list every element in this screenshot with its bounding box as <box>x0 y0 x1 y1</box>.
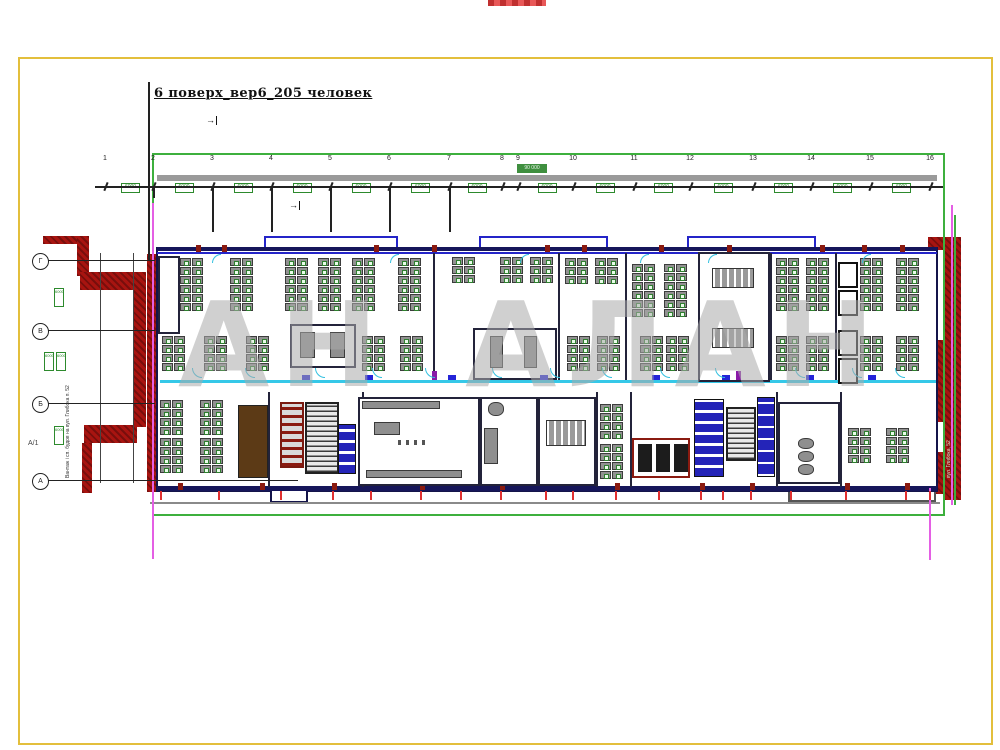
desk <box>896 336 907 344</box>
desk <box>776 285 787 293</box>
phone-booth-3 <box>838 330 858 356</box>
lounge-barrel-1 <box>798 438 814 449</box>
desk <box>600 404 611 412</box>
desk <box>242 276 253 284</box>
desk <box>160 409 171 417</box>
desk <box>664 291 675 299</box>
row-line-4 <box>48 480 298 481</box>
desk-pod <box>200 438 224 473</box>
dimension-box-vertical: 6000 <box>56 352 66 371</box>
desk <box>896 285 907 293</box>
wall-v-11 <box>840 392 842 487</box>
desk <box>612 431 623 439</box>
desk <box>788 285 799 293</box>
desk <box>788 294 799 302</box>
desk <box>400 345 411 353</box>
desk-pod <box>204 336 228 371</box>
red-tick <box>545 491 547 500</box>
desk <box>464 275 475 283</box>
desk-pod <box>567 336 591 371</box>
desk <box>848 446 859 454</box>
blue-door <box>540 375 548 380</box>
dimension-box: 6000 <box>352 183 371 193</box>
desk <box>160 447 171 455</box>
door-jamb <box>727 245 732 252</box>
desk <box>530 275 541 283</box>
desk <box>172 447 183 455</box>
desk <box>860 276 871 284</box>
desk <box>180 276 191 284</box>
desk <box>364 267 375 275</box>
desk <box>644 273 655 281</box>
desk <box>230 258 241 266</box>
desk <box>896 276 907 284</box>
desk <box>644 291 655 299</box>
cabinet-left <box>158 256 180 334</box>
desk <box>896 303 907 311</box>
blue-door <box>302 375 310 380</box>
desk <box>318 294 329 302</box>
desk-pod <box>806 336 830 371</box>
desk <box>246 354 257 362</box>
desk <box>200 456 211 464</box>
desk <box>172 409 183 417</box>
desk <box>600 471 611 479</box>
desk <box>664 300 675 308</box>
desk <box>806 294 817 302</box>
desk <box>664 273 675 281</box>
grid-drop-line <box>449 186 451 232</box>
desk <box>886 455 897 463</box>
desk <box>640 336 651 344</box>
desk <box>242 258 253 266</box>
row-line-1 <box>48 260 155 261</box>
red-tick <box>572 491 574 500</box>
top-red-strip <box>488 0 546 6</box>
desk <box>230 294 241 302</box>
wc-stall-b <box>656 444 670 472</box>
red-wall-step-b <box>77 236 89 276</box>
grid-number: 10 <box>569 155 577 162</box>
door-jamb <box>905 483 910 490</box>
desk <box>230 303 241 311</box>
desk <box>542 275 553 283</box>
desk <box>230 267 241 275</box>
grid-number: 14 <box>807 155 815 162</box>
desk <box>776 336 787 344</box>
desk <box>162 336 173 344</box>
desk-pod <box>398 258 422 311</box>
north-arrow: → <box>289 201 300 210</box>
axis-bubble: Г <box>32 253 49 270</box>
axis-bubble: А <box>32 473 49 490</box>
desk <box>612 422 623 430</box>
desk <box>412 363 423 371</box>
desk <box>172 465 183 473</box>
desk <box>180 267 191 275</box>
kitchen-counter <box>362 401 440 409</box>
desk <box>607 267 618 275</box>
desk <box>160 418 171 426</box>
desk <box>806 258 817 266</box>
desk-pod <box>362 336 386 371</box>
desk <box>652 345 663 353</box>
magenta-left <box>152 203 154 559</box>
blue-door <box>365 375 373 380</box>
desk <box>330 258 341 266</box>
room-center <box>473 328 557 380</box>
door-jamb <box>900 245 905 252</box>
desk <box>318 276 329 284</box>
desk <box>597 336 608 344</box>
door-jamb <box>700 483 705 490</box>
desk <box>579 363 590 371</box>
red-wall-step-c <box>80 272 138 290</box>
desk <box>398 303 409 311</box>
desk <box>192 285 203 293</box>
desk <box>788 267 799 275</box>
desk <box>297 294 308 302</box>
door-jamb <box>222 245 227 252</box>
wall-v-6 <box>268 392 270 487</box>
desk <box>886 428 897 436</box>
desk <box>806 354 817 362</box>
wc-stalls-2 <box>694 399 724 477</box>
desk <box>200 447 211 455</box>
dim-line <box>95 186 943 188</box>
desk <box>258 354 269 362</box>
rc-table-1 <box>490 336 503 368</box>
right-street-note: вул. Глибока, 52 <box>947 440 952 478</box>
desk <box>666 354 677 362</box>
desk <box>512 266 523 274</box>
desk <box>352 285 363 293</box>
door-jamb <box>582 245 587 252</box>
desk <box>664 264 675 272</box>
dimension-box: 6000 <box>654 183 673 193</box>
grid-number: 4 <box>269 155 273 162</box>
desk <box>160 427 171 435</box>
red-tick <box>370 491 372 500</box>
desk <box>567 336 578 344</box>
desk <box>230 276 241 284</box>
desk <box>666 336 677 344</box>
desk <box>896 354 907 362</box>
desk <box>216 345 227 353</box>
desk <box>412 336 423 344</box>
desk <box>192 258 203 266</box>
desk <box>452 275 463 283</box>
bump-bottom-left <box>270 489 308 503</box>
dimension-box: 6000 <box>596 183 615 193</box>
desk <box>577 258 588 266</box>
kitchen-chairs <box>398 440 430 445</box>
desk <box>352 267 363 275</box>
desk <box>364 294 375 302</box>
desk <box>600 422 611 430</box>
desk-pod <box>886 428 910 463</box>
desk-pod <box>600 404 624 439</box>
desk <box>330 285 341 293</box>
axis-extra-label: А/1 <box>28 440 39 447</box>
wc-stalls-1 <box>338 424 356 474</box>
desk <box>364 303 375 311</box>
desk <box>374 336 385 344</box>
desk <box>644 264 655 272</box>
desk <box>896 345 907 353</box>
rc-table-2 <box>524 336 537 368</box>
desk <box>258 336 269 344</box>
gray-bar <box>157 175 937 181</box>
kitchen-bench <box>366 470 462 478</box>
desk <box>362 354 373 362</box>
desk <box>579 336 590 344</box>
desk <box>898 437 909 445</box>
desk-pod <box>666 336 690 371</box>
desk <box>362 345 373 353</box>
desk-pod <box>776 336 800 371</box>
desk <box>318 267 329 275</box>
elevator-grid <box>280 402 304 468</box>
desk <box>400 363 411 371</box>
desk <box>666 345 677 353</box>
door-jamb <box>432 245 437 252</box>
red-tick <box>615 491 617 500</box>
desk <box>412 354 423 362</box>
desk <box>818 276 829 284</box>
desk <box>200 400 211 408</box>
axis-bubble: Б <box>32 396 49 413</box>
desk <box>212 438 223 446</box>
desk <box>410 267 421 275</box>
door-jamb <box>862 245 867 252</box>
desk <box>860 285 871 293</box>
desk <box>285 294 296 302</box>
desk <box>788 354 799 362</box>
desk <box>565 276 576 284</box>
desk <box>898 428 909 436</box>
desk <box>452 257 463 265</box>
desk <box>788 336 799 344</box>
desk-pod <box>896 336 920 371</box>
grid-number: 1 <box>103 155 107 162</box>
wall-v-3 <box>625 253 627 380</box>
desk <box>162 363 173 371</box>
desk <box>632 264 643 272</box>
conference-table <box>546 420 586 446</box>
desk <box>806 345 817 353</box>
desk <box>400 354 411 362</box>
desk <box>172 418 183 426</box>
desk <box>172 400 183 408</box>
red-tick <box>845 491 847 500</box>
desk <box>192 303 203 311</box>
desk <box>788 303 799 311</box>
desk-pod <box>640 336 664 371</box>
desk <box>200 465 211 473</box>
desk-pod <box>600 444 624 479</box>
desk <box>285 267 296 275</box>
total-dimension-box: 90 000 <box>517 164 547 173</box>
desk-pod <box>848 428 872 463</box>
red-tick <box>905 491 907 500</box>
desk <box>776 303 787 311</box>
desk <box>174 354 185 362</box>
door-jamb <box>750 483 755 490</box>
purple-door <box>736 371 741 380</box>
grid-number: 7 <box>447 155 451 162</box>
desk <box>285 303 296 311</box>
desk <box>297 303 308 311</box>
desk <box>848 455 859 463</box>
desk <box>204 363 215 371</box>
desk <box>364 285 375 293</box>
desk <box>398 294 409 302</box>
desk <box>908 336 919 344</box>
desk <box>204 354 215 362</box>
desk <box>200 409 211 417</box>
desk <box>180 258 191 266</box>
phone-booth-2 <box>838 290 858 316</box>
desk <box>410 303 421 311</box>
door-jamb <box>845 483 850 490</box>
wall-v-1 <box>433 253 435 380</box>
desk <box>860 267 871 275</box>
red-tick <box>700 491 702 500</box>
desk <box>896 294 907 302</box>
desk <box>818 267 829 275</box>
desk <box>530 266 541 274</box>
top-blue-line <box>157 252 937 254</box>
door-jamb <box>374 245 379 252</box>
desk <box>818 354 829 362</box>
desk <box>806 336 817 344</box>
desk <box>806 285 817 293</box>
desk <box>678 363 689 371</box>
desk <box>860 428 871 436</box>
desk <box>818 258 829 266</box>
desk <box>788 345 799 353</box>
desk <box>174 363 185 371</box>
desk <box>607 258 618 266</box>
desk <box>872 267 883 275</box>
dimension-box: 6000 <box>714 183 733 193</box>
desk <box>612 444 623 452</box>
desk <box>204 345 215 353</box>
red-tick <box>218 491 220 500</box>
red-tick <box>460 491 462 500</box>
desk <box>174 345 185 353</box>
desk <box>818 303 829 311</box>
desk <box>860 345 871 353</box>
desk <box>216 336 227 344</box>
desk <box>258 345 269 353</box>
desk <box>896 267 907 275</box>
desk <box>212 418 223 426</box>
left-street-note: Вантаж і сп. будов на вул. Глибока п. 52 <box>66 385 71 478</box>
desk <box>664 309 675 317</box>
desk <box>908 294 919 302</box>
desk-pod <box>595 258 619 284</box>
desk <box>212 447 223 455</box>
desk <box>678 336 689 344</box>
blue-door <box>868 375 876 380</box>
wall-v-8 <box>596 392 598 487</box>
desk-pod <box>452 257 476 283</box>
desk <box>818 336 829 344</box>
desk <box>318 258 329 266</box>
desk <box>160 456 171 464</box>
desk <box>410 258 421 266</box>
desk <box>500 275 511 283</box>
desk <box>410 276 421 284</box>
desk <box>776 276 787 284</box>
grid-drop-line <box>330 186 332 232</box>
desk <box>860 294 871 302</box>
desk <box>676 273 687 281</box>
desk <box>542 257 553 265</box>
desk <box>678 354 689 362</box>
left-dim-v1 <box>100 253 101 483</box>
door-jamb <box>260 483 265 490</box>
desk-pod <box>860 336 884 371</box>
desk <box>297 285 308 293</box>
desk <box>398 285 409 293</box>
desk <box>908 303 919 311</box>
desk <box>640 345 651 353</box>
door-jamb <box>659 245 664 252</box>
dimension-box: 6000 <box>774 183 793 193</box>
lounge-chair <box>488 402 504 416</box>
red-tick <box>658 491 660 500</box>
phone-booth-1 <box>838 262 858 288</box>
desk-pod <box>860 258 884 311</box>
drawing-title: 6 поверх_вер6_205 человек <box>154 86 372 101</box>
desk <box>806 303 817 311</box>
desk <box>908 363 919 371</box>
desk <box>652 336 663 344</box>
desk <box>908 354 919 362</box>
grid-number: 12 <box>686 155 694 162</box>
desk <box>609 354 620 362</box>
desk <box>297 267 308 275</box>
desk <box>162 345 173 353</box>
desk <box>860 455 871 463</box>
desk <box>632 273 643 281</box>
desk <box>886 437 897 445</box>
desk <box>600 462 611 470</box>
desk <box>872 354 883 362</box>
desk <box>612 413 623 421</box>
desk <box>567 354 578 362</box>
meeting-table-2 <box>712 328 754 348</box>
desk <box>600 413 611 421</box>
desk <box>174 336 185 344</box>
desk <box>872 285 883 293</box>
grid-drop-line <box>153 186 155 198</box>
desk <box>644 300 655 308</box>
desk <box>172 427 183 435</box>
desk <box>212 465 223 473</box>
desk-pod <box>285 258 309 311</box>
desk <box>579 345 590 353</box>
desk <box>200 418 211 426</box>
desk <box>192 267 203 275</box>
desk <box>464 257 475 265</box>
desk <box>577 276 588 284</box>
desk <box>860 446 871 454</box>
desk <box>678 345 689 353</box>
